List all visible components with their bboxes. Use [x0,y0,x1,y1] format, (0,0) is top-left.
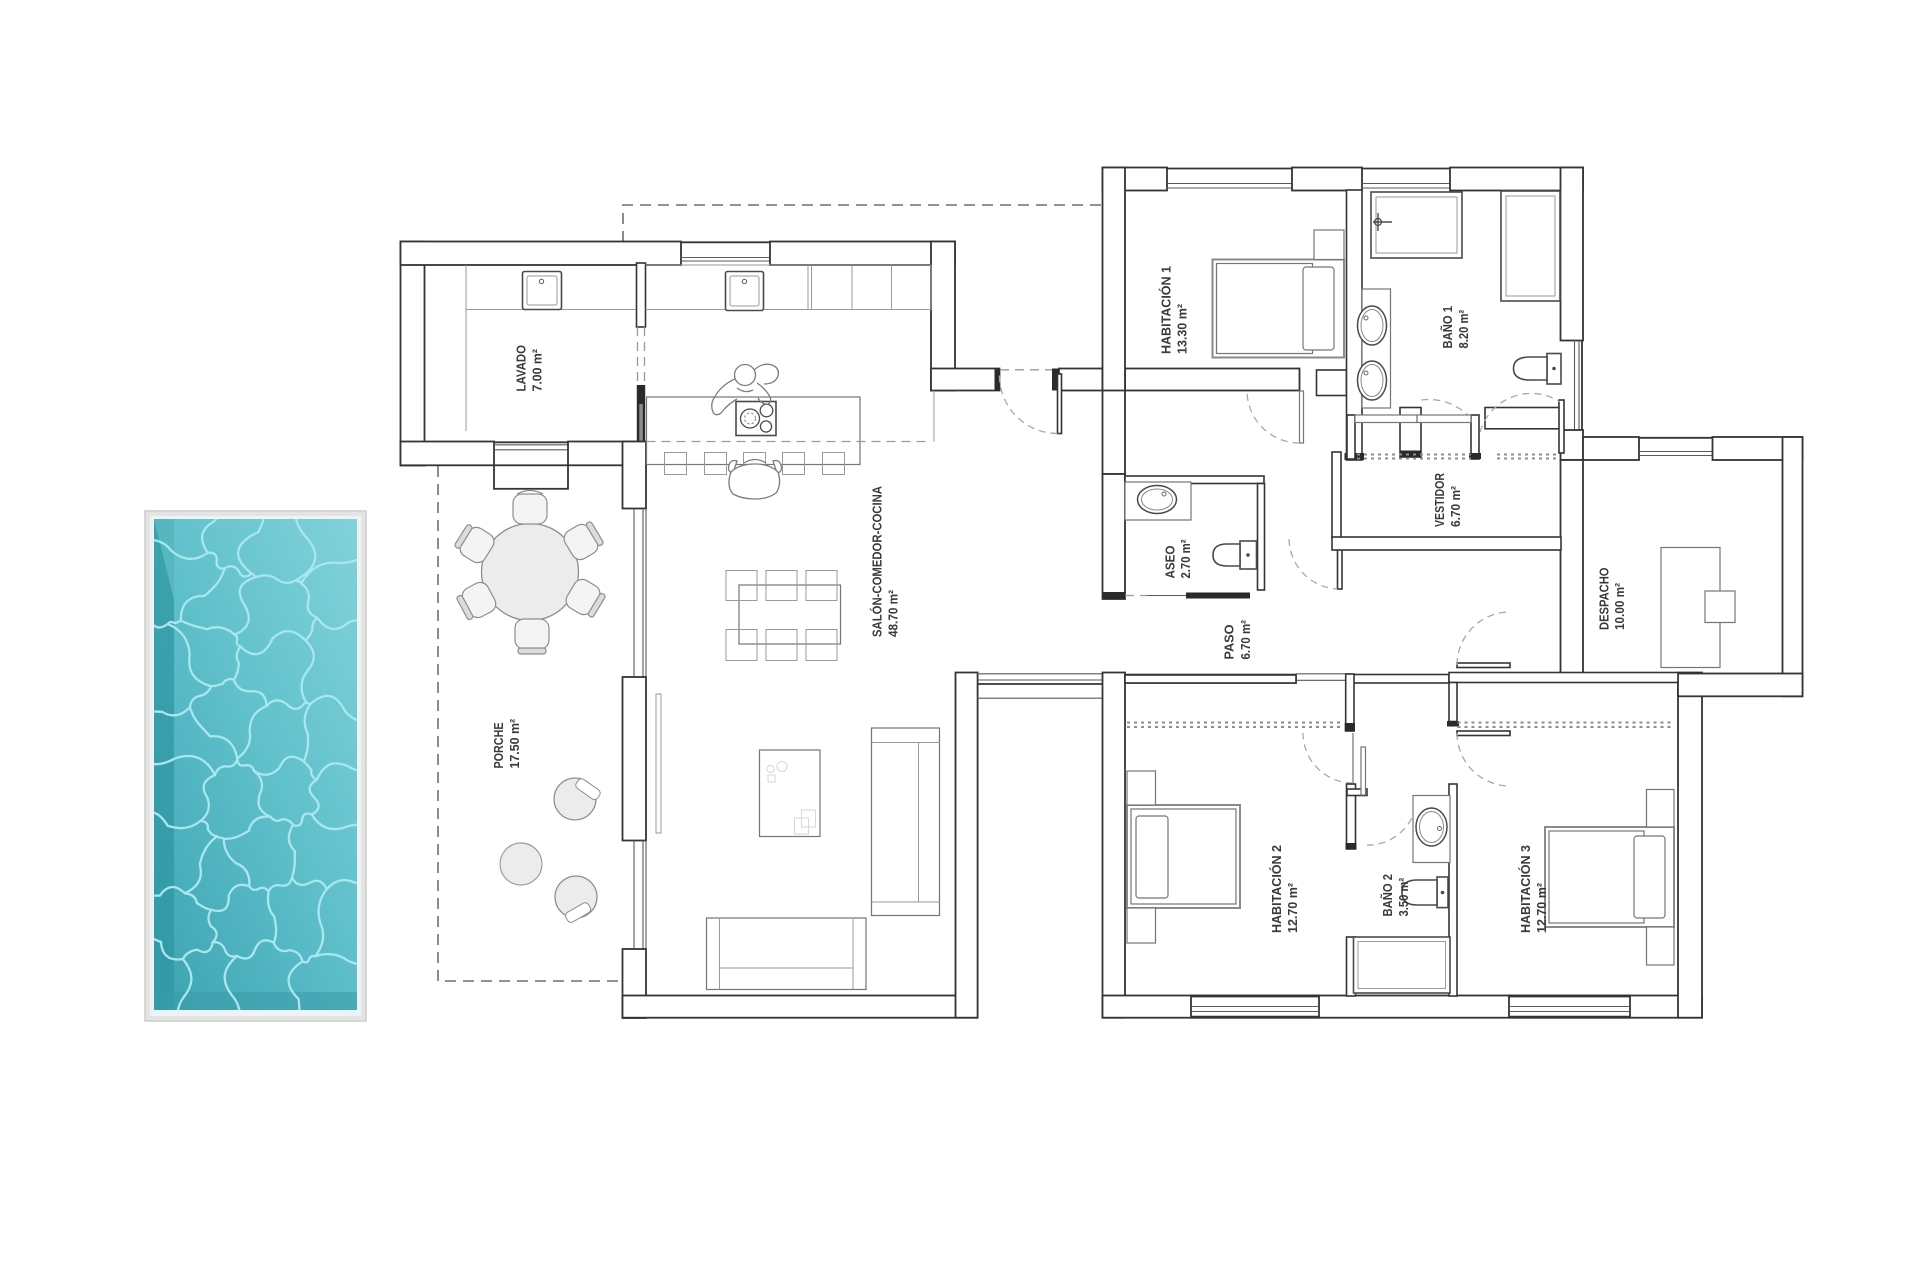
svg-text:PASO: PASO [1222,624,1237,659]
svg-text:BAÑO 2: BAÑO 2 [1380,874,1395,917]
svg-text:VESTIDOR: VESTIDOR [1432,473,1447,527]
svg-text:10.00 m²: 10.00 m² [1612,583,1627,630]
svg-text:LAVADO: LAVADO [514,345,529,392]
svg-text:7.00 m²: 7.00 m² [530,349,545,392]
svg-text:HABITACIÓN 2: HABITACIÓN 2 [1269,845,1284,933]
svg-text:17.50 m²: 17.50 m² [507,719,522,769]
svg-text:PORCHE: PORCHE [491,722,506,768]
svg-text:BAÑO 1: BAÑO 1 [1440,306,1455,349]
svg-text:ASEO: ASEO [1163,545,1178,578]
svg-text:13.30 m²: 13.30 m² [1175,304,1190,354]
svg-text:8.20 m²: 8.20 m² [1456,310,1471,349]
svg-text:3.50 m²: 3.50 m² [1396,878,1411,917]
svg-text:6.70 m²: 6.70 m² [1448,486,1463,527]
svg-text:6.70 m²: 6.70 m² [1238,620,1253,660]
svg-text:48.70 m²: 48.70 m² [886,590,901,637]
svg-text:SALÓN-COMEDOR-COCINA: SALÓN-COMEDOR-COCINA [870,486,885,637]
svg-text:DESPACHO: DESPACHO [1597,567,1612,630]
svg-text:2.70 m²: 2.70 m² [1178,540,1193,579]
svg-text:12.70 m²: 12.70 m² [1285,883,1300,933]
svg-text:HABITACIÓN 1: HABITACIÓN 1 [1159,266,1174,354]
svg-text:HABITACIÓN 3: HABITACIÓN 3 [1518,845,1533,933]
svg-text:12.70 m²: 12.70 m² [1534,883,1549,933]
